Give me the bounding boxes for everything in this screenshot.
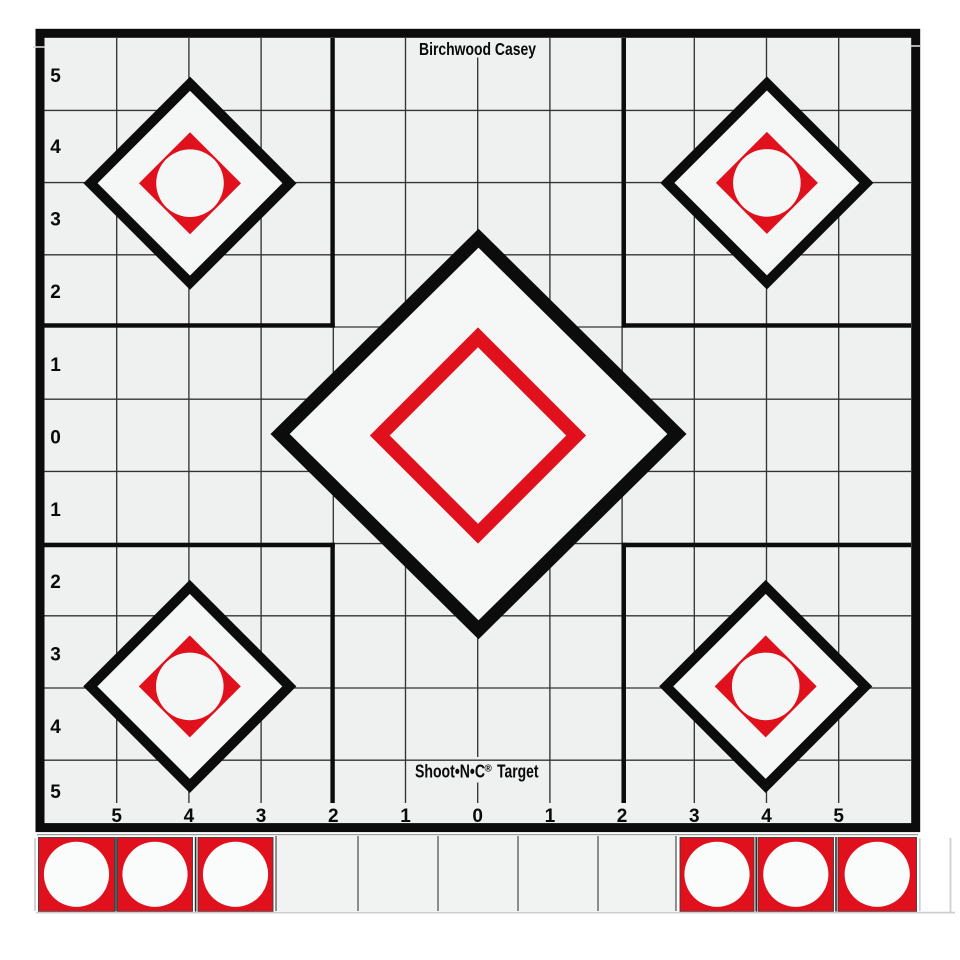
svg-text:®: ® <box>485 764 493 775</box>
svg-text:5: 5 <box>50 782 61 803</box>
svg-text:3: 3 <box>256 806 267 827</box>
svg-text:5: 5 <box>833 806 844 827</box>
svg-text:3: 3 <box>50 210 61 231</box>
svg-text:5: 5 <box>111 806 122 827</box>
svg-text:Birchwood Casey: Birchwood Casey <box>419 39 536 59</box>
svg-text:1: 1 <box>400 806 411 827</box>
svg-text:1: 1 <box>545 806 556 827</box>
svg-text:2: 2 <box>617 806 628 827</box>
svg-text:Shoot•N•C: Shoot•N•C <box>415 762 485 782</box>
svg-text:1: 1 <box>50 355 61 376</box>
svg-text:1: 1 <box>50 500 61 521</box>
svg-text:Target: Target <box>497 762 539 782</box>
svg-text:4: 4 <box>50 717 61 738</box>
svg-text:2: 2 <box>328 806 339 827</box>
svg-text:4: 4 <box>50 137 61 158</box>
svg-text:5: 5 <box>50 66 61 87</box>
svg-text:4: 4 <box>184 806 195 827</box>
svg-text:3: 3 <box>689 806 700 827</box>
svg-text:4: 4 <box>761 806 772 827</box>
svg-text:2: 2 <box>50 282 61 303</box>
svg-text:2: 2 <box>50 572 61 593</box>
svg-text:0: 0 <box>472 806 483 827</box>
svg-text:0: 0 <box>50 428 61 449</box>
svg-text:3: 3 <box>50 645 61 666</box>
